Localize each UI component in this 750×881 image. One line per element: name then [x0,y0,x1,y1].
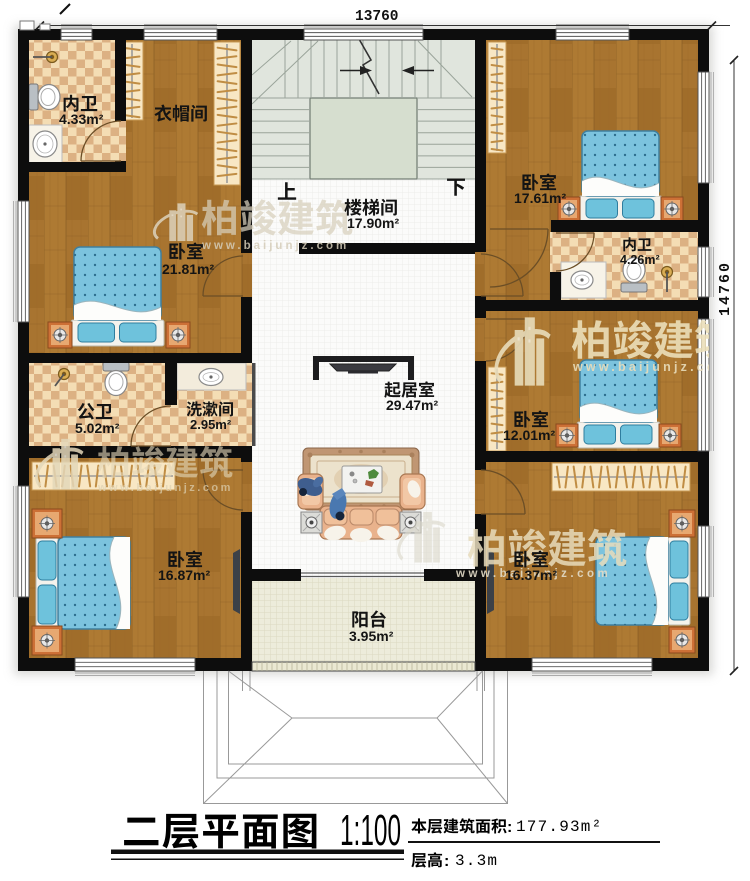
svg-text:www.baijunjz.com: www.baijunjz.com [572,360,732,374]
svg-text::: : [444,853,449,870]
svg-text:12.01m²: 12.01m² [503,427,555,443]
svg-text:2.95m²: 2.95m² [190,417,232,432]
svg-text:4.33m²: 4.33m² [59,111,104,127]
svg-text:177.93m²: 177.93m² [516,818,602,836]
svg-text:17.61m²: 17.61m² [514,190,566,206]
svg-text:3.3m: 3.3m [455,852,498,870]
svg-text:16.37m²: 16.37m² [505,567,557,583]
svg-text:16.87m²: 16.87m² [158,567,210,583]
svg-text:5.02m²: 5.02m² [75,420,120,436]
svg-text::: : [507,819,512,836]
svg-text:1:100: 1:100 [340,806,401,855]
svg-text:www.baijunjz.com: www.baijunjz.com [201,240,349,252]
svg-text:13760: 13760 [355,9,399,25]
svg-text:3.95m²: 3.95m² [349,628,394,644]
svg-text:4.26m²: 4.26m² [620,253,660,267]
svg-text:www.baijunjz.com: www.baijunjz.com [97,482,233,494]
svg-text:29.47m²: 29.47m² [386,397,438,413]
svg-text:14760: 14760 [717,261,734,316]
svg-text:17.90m²: 17.90m² [347,215,399,231]
svg-text:21.81m²: 21.81m² [162,261,214,277]
